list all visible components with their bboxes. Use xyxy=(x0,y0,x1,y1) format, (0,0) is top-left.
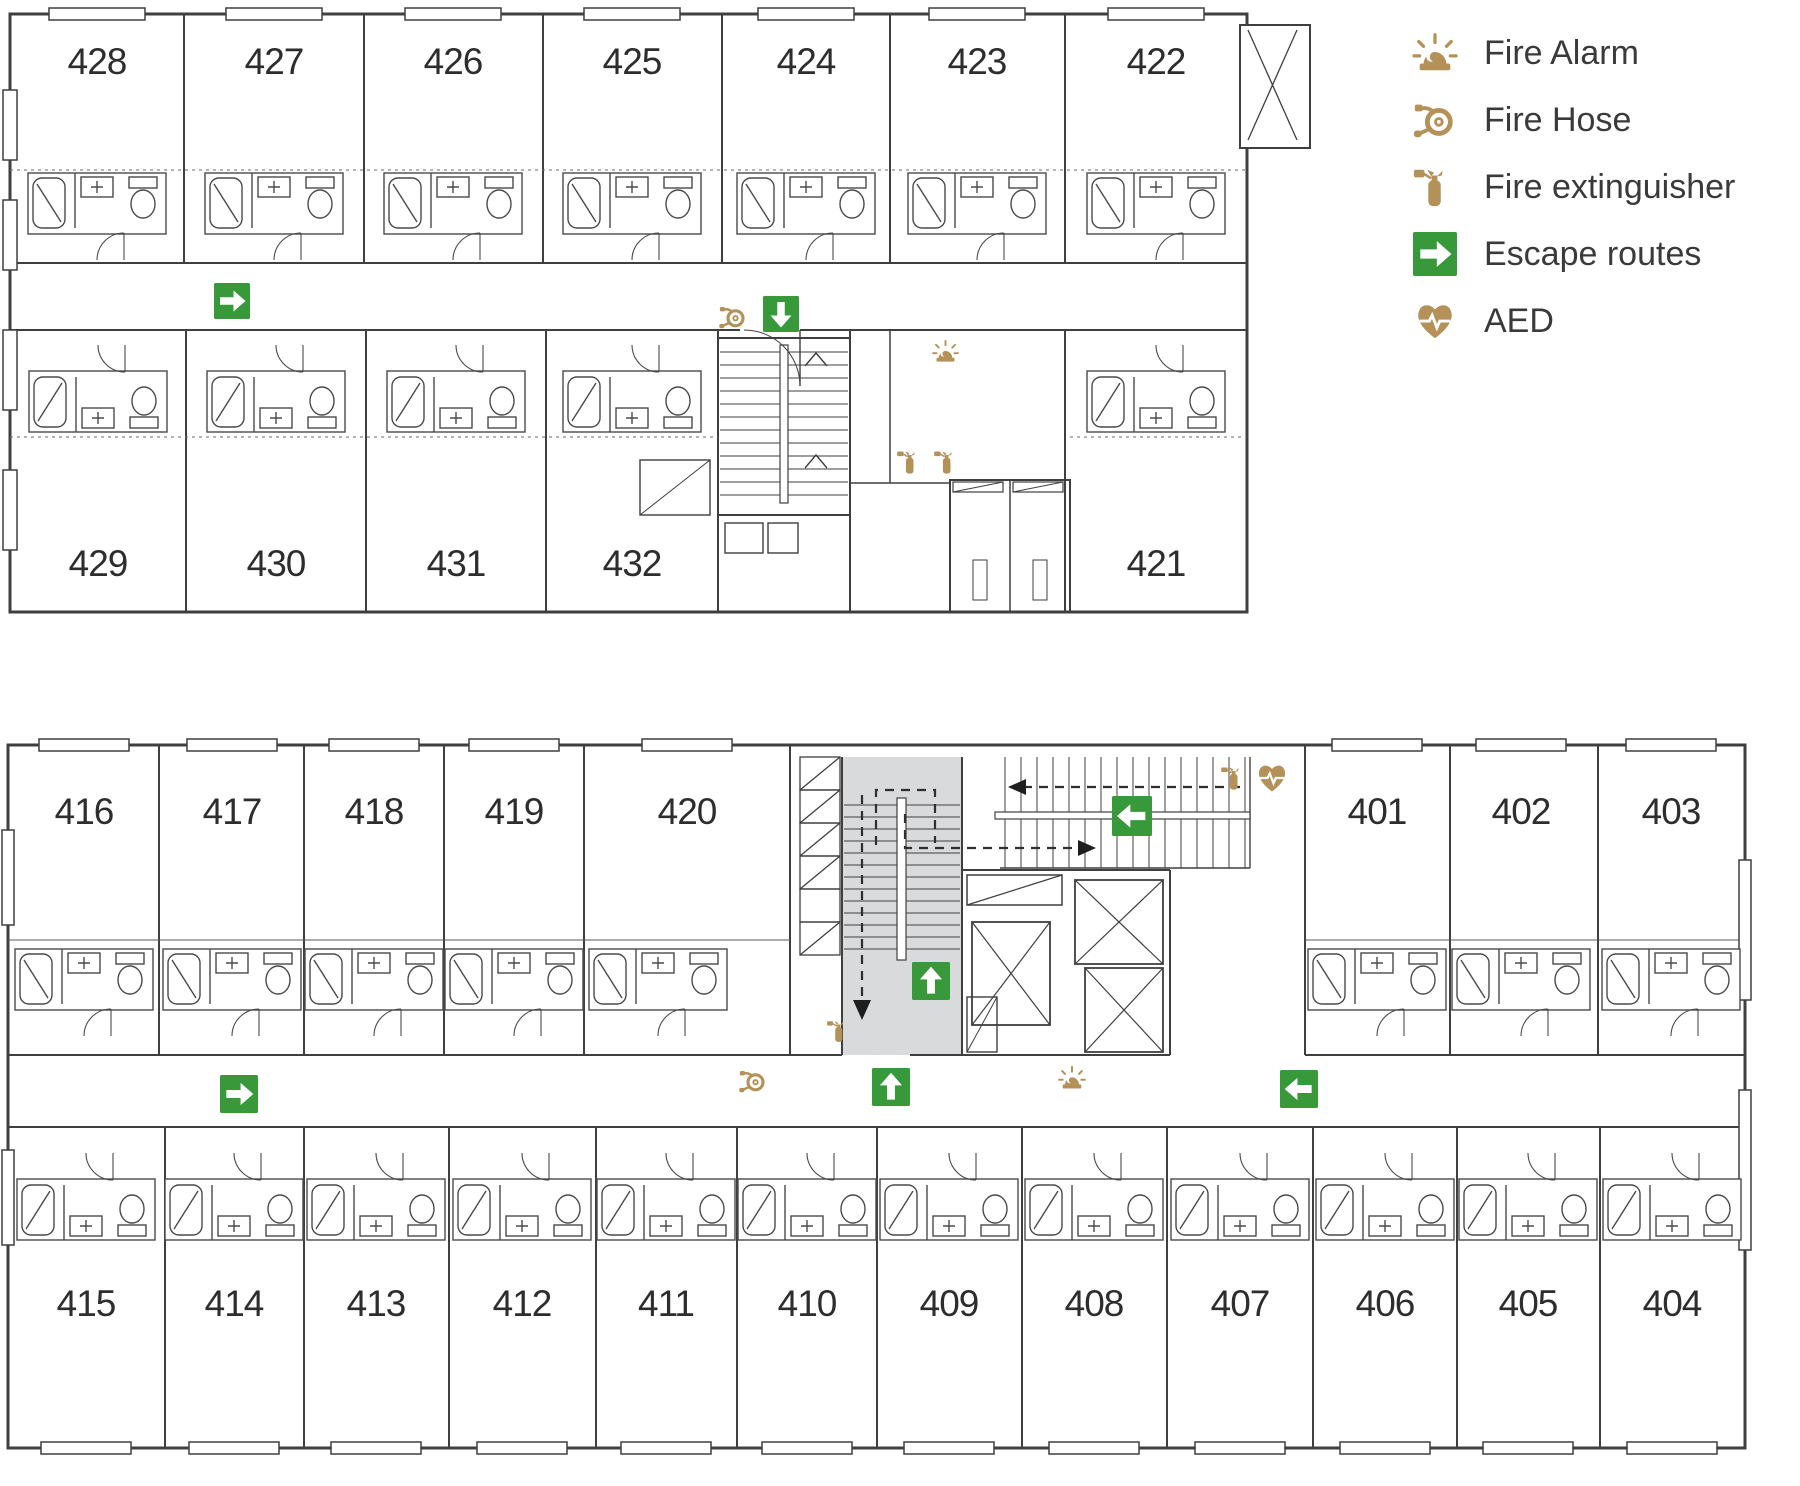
room-label-432: 432 xyxy=(603,543,662,584)
legend-item-aed: AED xyxy=(1412,298,1735,344)
room-label-411: 411 xyxy=(638,1283,694,1324)
room-label-425: 425 xyxy=(603,41,662,82)
room-label-424: 424 xyxy=(777,41,836,82)
room-label-422: 422 xyxy=(1127,41,1186,82)
legend-item-fire-extinguisher: Fire extinguisher xyxy=(1412,164,1735,210)
legend-item-fire-hose: Fire Hose xyxy=(1412,97,1735,143)
room-label-410: 410 xyxy=(778,1283,837,1324)
room-label-416: 416 xyxy=(55,791,114,832)
escape-route-right-icon xyxy=(220,1075,258,1113)
room-label-413: 413 xyxy=(347,1283,406,1324)
room-label-401: 401 xyxy=(1348,791,1407,832)
legend-label-fire-hose: Fire Hose xyxy=(1484,101,1631,140)
room-label-427: 427 xyxy=(245,41,304,82)
room-label-412: 412 xyxy=(493,1283,552,1324)
legend-label-fire-extinguisher: Fire extinguisher xyxy=(1484,168,1735,207)
room-label-431: 431 xyxy=(427,543,486,584)
room-label-408: 408 xyxy=(1065,1283,1124,1324)
room-label-420: 420 xyxy=(658,791,717,832)
aed-icon xyxy=(1412,298,1458,344)
fire-hose-icon xyxy=(1412,97,1458,143)
room-label-417: 417 xyxy=(203,791,262,832)
room-label-415: 415 xyxy=(57,1283,116,1324)
room-label-409: 409 xyxy=(920,1283,979,1324)
escape-route-up-icon xyxy=(872,1068,910,1106)
legend-label-aed: AED xyxy=(1484,302,1554,341)
escape-route-left-icon xyxy=(1280,1070,1318,1108)
fire-alarm-icon xyxy=(1412,30,1458,76)
legend-label-fire-alarm: Fire Alarm xyxy=(1484,34,1639,73)
legend: Fire Alarm Fire Hose Fire extinguisher E… xyxy=(1412,30,1735,344)
upper-walls xyxy=(3,8,1310,612)
lower-floor-plan: 416 417 418 419 420 401 402 403 415 414 … xyxy=(2,739,1751,1454)
escape-route-icon xyxy=(1412,232,1458,276)
upper-floor-plan: 428 427 426 425 424 423 422 429 430 431 … xyxy=(3,8,1310,612)
legend-item-fire-alarm: Fire Alarm xyxy=(1412,30,1735,76)
fire-extinguisher-icon xyxy=(1412,164,1458,210)
escape-route-up-icon xyxy=(912,962,950,1000)
room-label-429: 429 xyxy=(69,543,128,584)
room-label-414: 414 xyxy=(205,1283,264,1324)
room-label-418: 418 xyxy=(345,791,404,832)
room-label-407: 407 xyxy=(1211,1283,1270,1324)
room-label-403: 403 xyxy=(1642,791,1701,832)
room-label-426: 426 xyxy=(424,41,483,82)
legend-item-escape-routes: Escape routes xyxy=(1412,231,1735,277)
escape-route-down-icon xyxy=(763,296,799,332)
room-label-423: 423 xyxy=(948,41,1007,82)
room-label-405: 405 xyxy=(1499,1283,1558,1324)
room-label-430: 430 xyxy=(247,543,306,584)
legend-label-escape-routes: Escape routes xyxy=(1484,235,1701,274)
room-label-402: 402 xyxy=(1492,791,1551,832)
room-label-428: 428 xyxy=(68,41,127,82)
escape-route-right-icon xyxy=(214,283,250,319)
room-label-421: 421 xyxy=(1127,543,1186,584)
room-label-404: 404 xyxy=(1643,1283,1702,1324)
room-label-419: 419 xyxy=(485,791,544,832)
room-label-406: 406 xyxy=(1356,1283,1415,1324)
escape-route-left-icon xyxy=(1112,796,1152,836)
